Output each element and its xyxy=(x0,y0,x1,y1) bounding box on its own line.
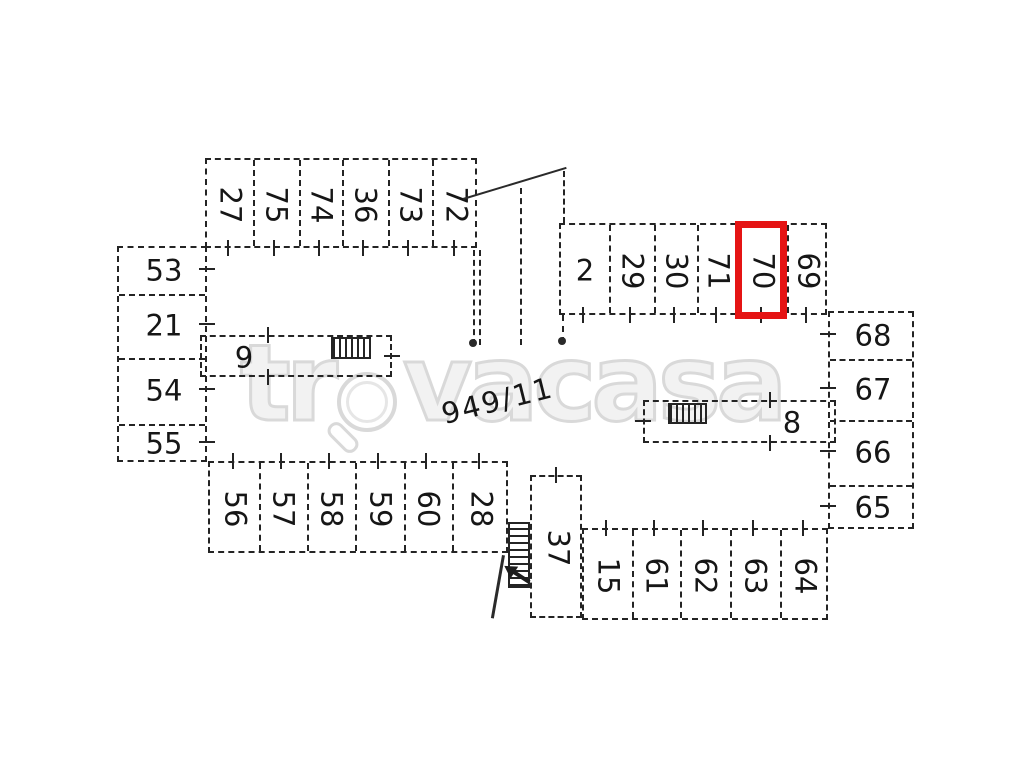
unit-label: 67 xyxy=(855,375,892,404)
stall-divider xyxy=(654,225,656,313)
unit-label: 58 xyxy=(317,491,346,528)
tick-mark xyxy=(769,392,771,408)
tick-mark xyxy=(715,307,717,323)
tick-mark xyxy=(582,307,584,323)
tick-mark xyxy=(820,505,836,507)
tick-mark xyxy=(653,520,655,536)
stall-divider xyxy=(119,294,205,296)
tick-mark xyxy=(820,450,836,452)
tick-mark xyxy=(328,453,330,469)
tick-mark xyxy=(318,240,320,256)
floor-plan: trvacasa 949/11 277574367372229307170695… xyxy=(0,0,1024,768)
ramp-wall xyxy=(563,171,565,223)
line-end-dot xyxy=(558,337,566,345)
tick-mark xyxy=(199,323,215,325)
tick-mark xyxy=(635,420,651,422)
parking-row: 68676665 xyxy=(828,311,914,529)
unit-label: 72 xyxy=(441,187,470,224)
tick-mark xyxy=(227,240,229,256)
stall-divider xyxy=(452,463,454,551)
tick-mark xyxy=(752,520,754,536)
unit-label: 29 xyxy=(617,253,646,290)
unit-label: 59 xyxy=(365,491,394,528)
unit-label: 74 xyxy=(306,187,335,224)
ramp-wall xyxy=(479,250,481,345)
tick-mark xyxy=(267,369,269,385)
tick-mark xyxy=(407,240,409,256)
unit-label: 8 xyxy=(783,409,801,438)
unit-label: 69 xyxy=(794,253,823,290)
stall-divider xyxy=(355,463,357,551)
ramp-top-edge xyxy=(463,167,567,200)
highlighted-unit-box xyxy=(735,221,787,319)
unit-label: 54 xyxy=(146,377,183,406)
stall-divider xyxy=(830,359,912,361)
line-end-dot xyxy=(469,339,477,347)
stall-divider xyxy=(342,160,344,246)
tick-mark xyxy=(273,240,275,256)
stall-divider xyxy=(730,530,732,618)
tick-mark xyxy=(280,453,282,469)
tick-mark xyxy=(820,387,836,389)
unit-label: 55 xyxy=(146,430,183,459)
unit-label: 30 xyxy=(661,253,690,290)
tick-mark xyxy=(232,453,234,469)
tick-mark xyxy=(802,520,804,536)
unit-label: 36 xyxy=(351,187,380,224)
unit-label: 75 xyxy=(262,187,291,224)
ramp-wall xyxy=(473,250,475,345)
tick-mark xyxy=(425,453,427,469)
unit-label: 66 xyxy=(855,438,892,467)
tick-mark xyxy=(453,240,455,256)
tick-mark xyxy=(384,355,400,357)
stall-divider xyxy=(609,225,611,313)
unit-label: 61 xyxy=(642,558,671,595)
unit-label: 62 xyxy=(691,558,720,595)
magnifier-lens-icon xyxy=(337,372,397,432)
tick-mark xyxy=(805,307,807,323)
stall-divider xyxy=(388,160,390,246)
parking-unit-37: 37 xyxy=(530,475,582,618)
tick-mark xyxy=(673,307,675,323)
unit-label: 28 xyxy=(467,491,496,528)
stall-divider xyxy=(632,530,634,618)
unit-label: 37 xyxy=(544,530,573,567)
parking-row: 277574367372 xyxy=(205,158,477,248)
unit-label: 9 xyxy=(235,344,253,373)
tick-mark xyxy=(478,453,480,469)
stall-divider xyxy=(307,463,309,551)
stair-hatch-right xyxy=(668,403,707,424)
tick-mark xyxy=(605,520,607,536)
tick-mark xyxy=(769,435,771,451)
unit-label: 65 xyxy=(855,494,892,523)
stall-divider xyxy=(404,463,406,551)
tick-mark xyxy=(199,441,215,443)
unit-label: 21 xyxy=(146,312,183,341)
unit-label: 56 xyxy=(220,491,249,528)
ramp-lane-line xyxy=(520,188,522,345)
unit-label: 64 xyxy=(791,558,820,595)
tick-mark xyxy=(820,333,836,335)
stall-divider xyxy=(830,485,912,487)
tick-mark xyxy=(555,467,557,483)
stall-divider xyxy=(259,463,261,551)
unit-label: 2 xyxy=(576,257,594,286)
tick-mark xyxy=(199,388,215,390)
stall-divider xyxy=(697,225,699,313)
stall-divider xyxy=(119,358,205,360)
unit-label: 27 xyxy=(216,187,245,224)
ramp-edge-line xyxy=(491,555,505,619)
unit-label: 15 xyxy=(594,558,623,595)
stall-divider xyxy=(787,225,789,313)
stall-divider xyxy=(780,530,782,618)
tick-mark xyxy=(199,268,215,270)
stair-hatch-left xyxy=(331,337,371,359)
tick-mark xyxy=(267,327,269,343)
parking-row: 1561626364 xyxy=(582,528,828,620)
unit-label: 60 xyxy=(414,491,443,528)
unit-label: 68 xyxy=(855,322,892,351)
unit-label: 71 xyxy=(704,253,733,290)
tick-mark xyxy=(702,520,704,536)
unit-label: 73 xyxy=(396,187,425,224)
stall-divider xyxy=(830,420,912,422)
stall-divider xyxy=(680,530,682,618)
parking-row: 565758596028 xyxy=(208,461,508,553)
unit-label: 57 xyxy=(269,491,298,528)
parking-row: 53215455 xyxy=(117,246,207,462)
tick-mark xyxy=(362,240,364,256)
tick-mark xyxy=(629,307,631,323)
stall-divider xyxy=(253,160,255,246)
stall-divider xyxy=(299,160,301,246)
unit-label: 53 xyxy=(146,257,183,286)
tick-mark xyxy=(377,453,379,469)
stall-divider xyxy=(432,160,434,246)
unit-label: 63 xyxy=(741,558,770,595)
